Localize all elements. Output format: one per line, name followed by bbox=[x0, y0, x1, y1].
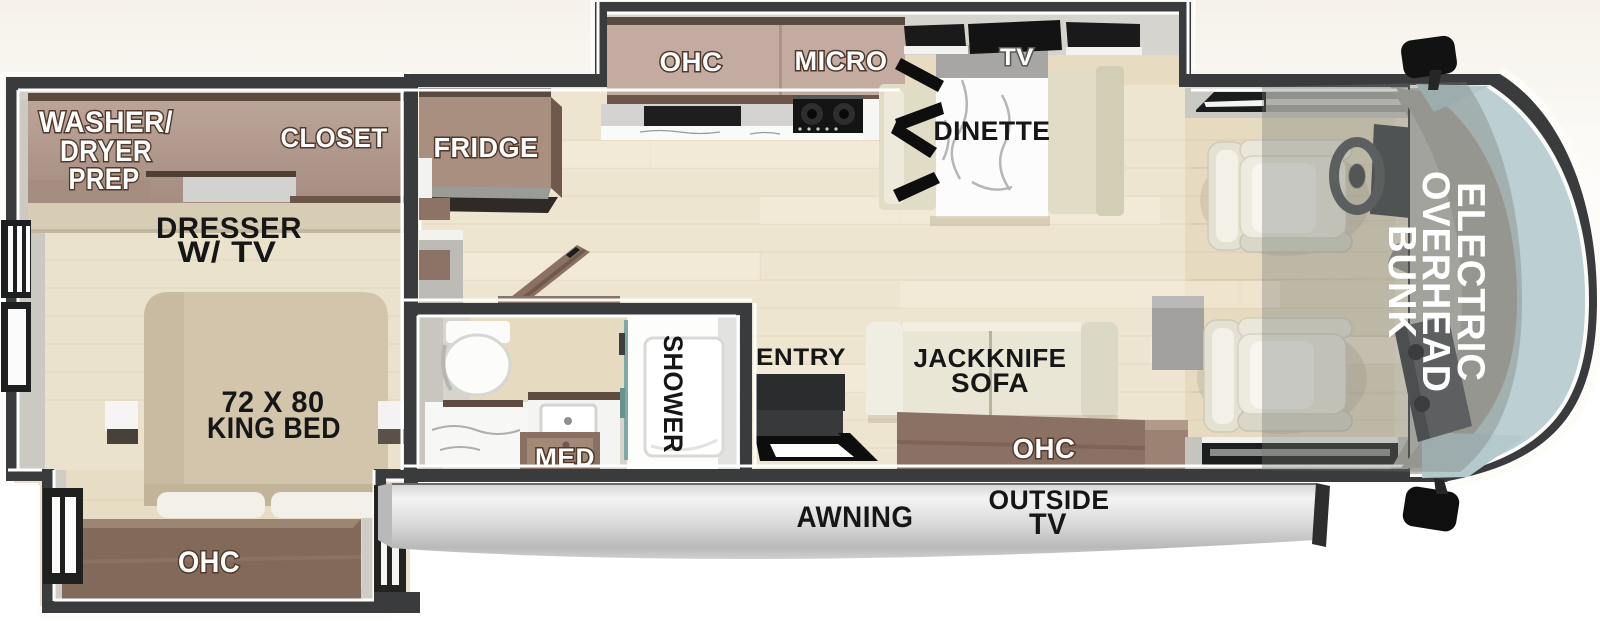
svg-text:MED: MED bbox=[535, 444, 595, 472]
svg-text:SOFA: SOFA bbox=[951, 368, 1029, 398]
svg-text:PREP: PREP bbox=[69, 163, 140, 196]
svg-text:TV: TV bbox=[1029, 508, 1067, 541]
svg-text:FRIDGE: FRIDGE bbox=[434, 132, 539, 163]
svg-text:OHC: OHC bbox=[178, 546, 240, 579]
svg-text:CLOSET: CLOSET bbox=[281, 123, 388, 153]
svg-text:TV: TV bbox=[1000, 44, 1034, 71]
svg-text:OHC: OHC bbox=[1013, 433, 1076, 464]
svg-text:KING BED: KING BED bbox=[207, 412, 341, 445]
svg-text:SHOWER: SHOWER bbox=[658, 335, 688, 453]
svg-text:W/ TV: W/ TV bbox=[178, 236, 277, 269]
svg-text:MICRO: MICRO bbox=[795, 46, 888, 76]
svg-text:AWNING: AWNING bbox=[797, 501, 914, 534]
svg-text:OHC: OHC bbox=[660, 47, 723, 77]
svg-text:DINETTE: DINETTE bbox=[934, 116, 1051, 146]
svg-text:ENTRY: ENTRY bbox=[756, 344, 846, 371]
